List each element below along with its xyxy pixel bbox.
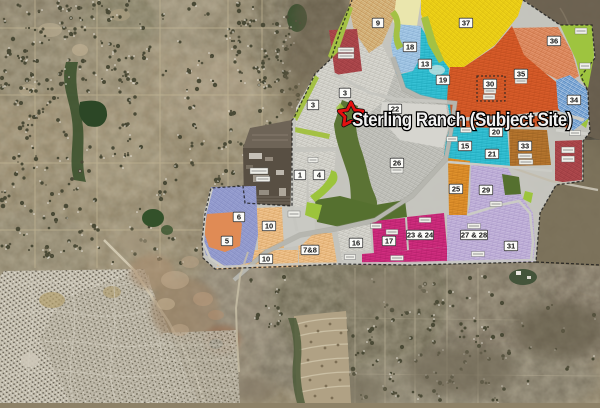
svg-text:10: 10 — [265, 222, 273, 231]
svg-text:18: 18 — [406, 43, 414, 52]
svg-text:31: 31 — [507, 242, 515, 251]
svg-text:37: 37 — [462, 19, 470, 28]
svg-text:21: 21 — [488, 150, 496, 159]
svg-text:36: 36 — [550, 37, 558, 46]
svg-text:9: 9 — [376, 19, 380, 28]
svg-text:3: 3 — [311, 101, 315, 110]
svg-text:1: 1 — [298, 171, 302, 180]
svg-text:27 & 28: 27 & 28 — [461, 231, 487, 240]
svg-text:5: 5 — [225, 237, 229, 246]
svg-text:13: 13 — [421, 60, 429, 69]
svg-text:34: 34 — [570, 96, 579, 105]
svg-text:7&8: 7&8 — [303, 246, 317, 255]
svg-text:17: 17 — [385, 237, 393, 246]
svg-text:6: 6 — [237, 213, 241, 222]
svg-text:25: 25 — [452, 185, 460, 194]
svg-text:35: 35 — [517, 70, 525, 79]
svg-text:30: 30 — [486, 80, 494, 89]
svg-text:15: 15 — [461, 142, 469, 151]
svg-text:Sterling Ranch (Subject Site): Sterling Ranch (Subject Site) — [352, 110, 572, 131]
svg-text:3: 3 — [343, 89, 347, 98]
svg-text:33: 33 — [521, 142, 529, 151]
svg-text:23 & 24: 23 & 24 — [407, 231, 434, 240]
svg-text:16: 16 — [352, 239, 360, 248]
svg-text:19: 19 — [439, 76, 447, 85]
svg-text:29: 29 — [482, 186, 490, 195]
svg-text:26: 26 — [393, 159, 401, 168]
svg-text:10: 10 — [262, 255, 270, 264]
